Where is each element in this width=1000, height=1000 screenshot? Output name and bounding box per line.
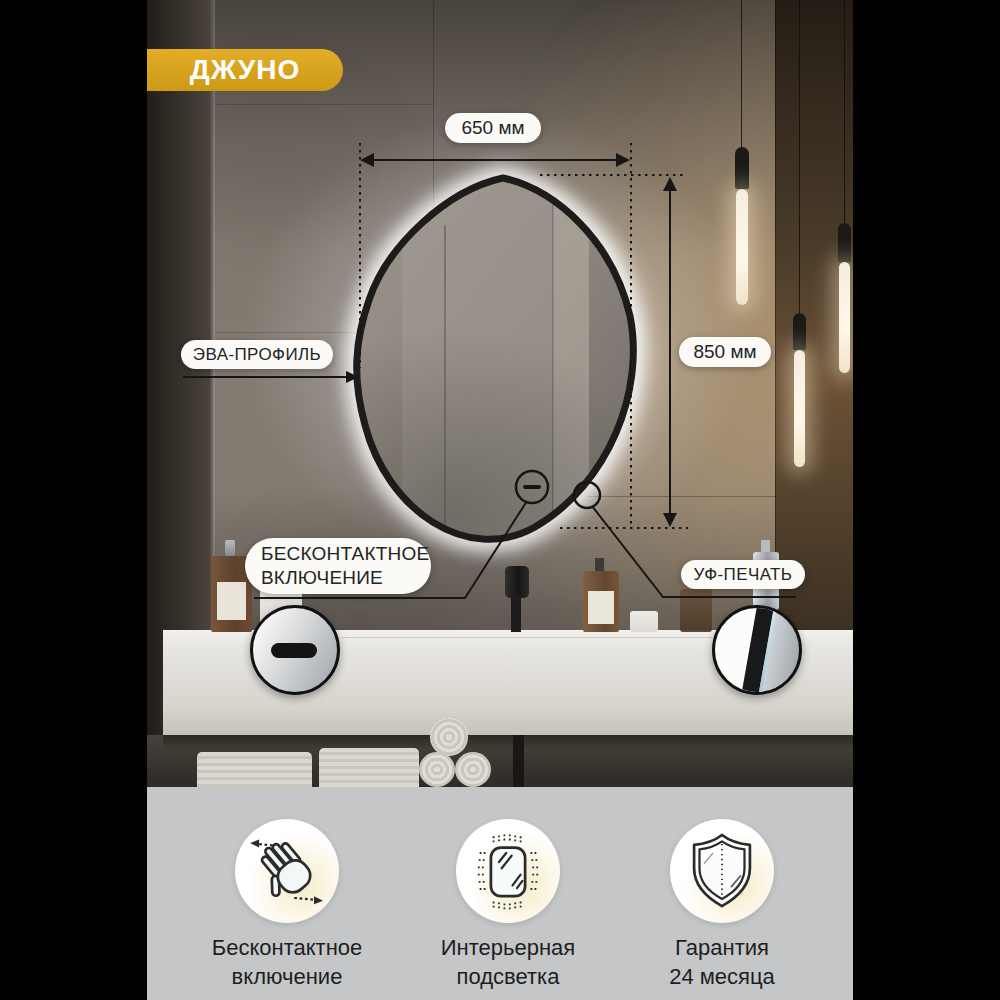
width-dimension-arrow: [360, 153, 630, 167]
height-dimension-arrow: [663, 177, 677, 527]
feature-touchless: Бесконтактноевключение: [187, 787, 387, 1000]
feature-backlight: Интерьернаяподсветка: [408, 787, 608, 1000]
feature-circle: [456, 819, 560, 923]
touchless-switch-label: БЕСКОНТАКТНОЕ ВКЛЮЧЕНИЕ: [245, 538, 431, 594]
wave-hand-icon: [242, 826, 332, 916]
brand-badge: ДЖУНО: [147, 49, 343, 91]
feature-caption: Гарантия24 месяца: [622, 933, 822, 991]
touch-sensor: [271, 643, 317, 658]
feature-circle: [670, 819, 774, 923]
shield-icon: [677, 826, 767, 916]
width-dimension-label: 650 мм: [445, 113, 541, 143]
feature-circle: [235, 819, 339, 923]
uv-edge-zoom-circle: [712, 605, 802, 695]
uv-print-label: УФ-ПЕЧАТЬ: [681, 560, 805, 589]
eva-profile-label: ЭВА-ПРОФИЛЬ: [181, 340, 333, 369]
product-image: 650 мм 850 мм ЭВА-ПРОФИЛЬ БЕСКОНТАКТНОЕ …: [0, 0, 1000, 1000]
mirror-reflection: [347, 170, 647, 570]
left-letterbox: [0, 0, 147, 1000]
bathroom-scene: 650 мм 850 мм ЭВА-ПРОФИЛЬ БЕСКОНТАКТНОЕ …: [147, 0, 853, 787]
right-letterbox: [853, 0, 1000, 1000]
feature-caption: Интерьернаяподсветка: [408, 933, 608, 991]
features-band: Бесконтактноевключение: [147, 787, 853, 1000]
mirror-edge: [739, 605, 775, 695]
badge-label: ДЖУНО: [190, 54, 300, 86]
height-dimension-label: 850 мм: [679, 337, 771, 367]
sensor-zoom-circle: [250, 605, 340, 695]
feature-warranty: Гарантия24 месяца: [622, 787, 822, 1000]
backlit-mirror-icon: [463, 826, 553, 916]
feature-caption: Бесконтактноевключение: [187, 933, 387, 991]
profile-pointer-arrow: [183, 371, 359, 383]
